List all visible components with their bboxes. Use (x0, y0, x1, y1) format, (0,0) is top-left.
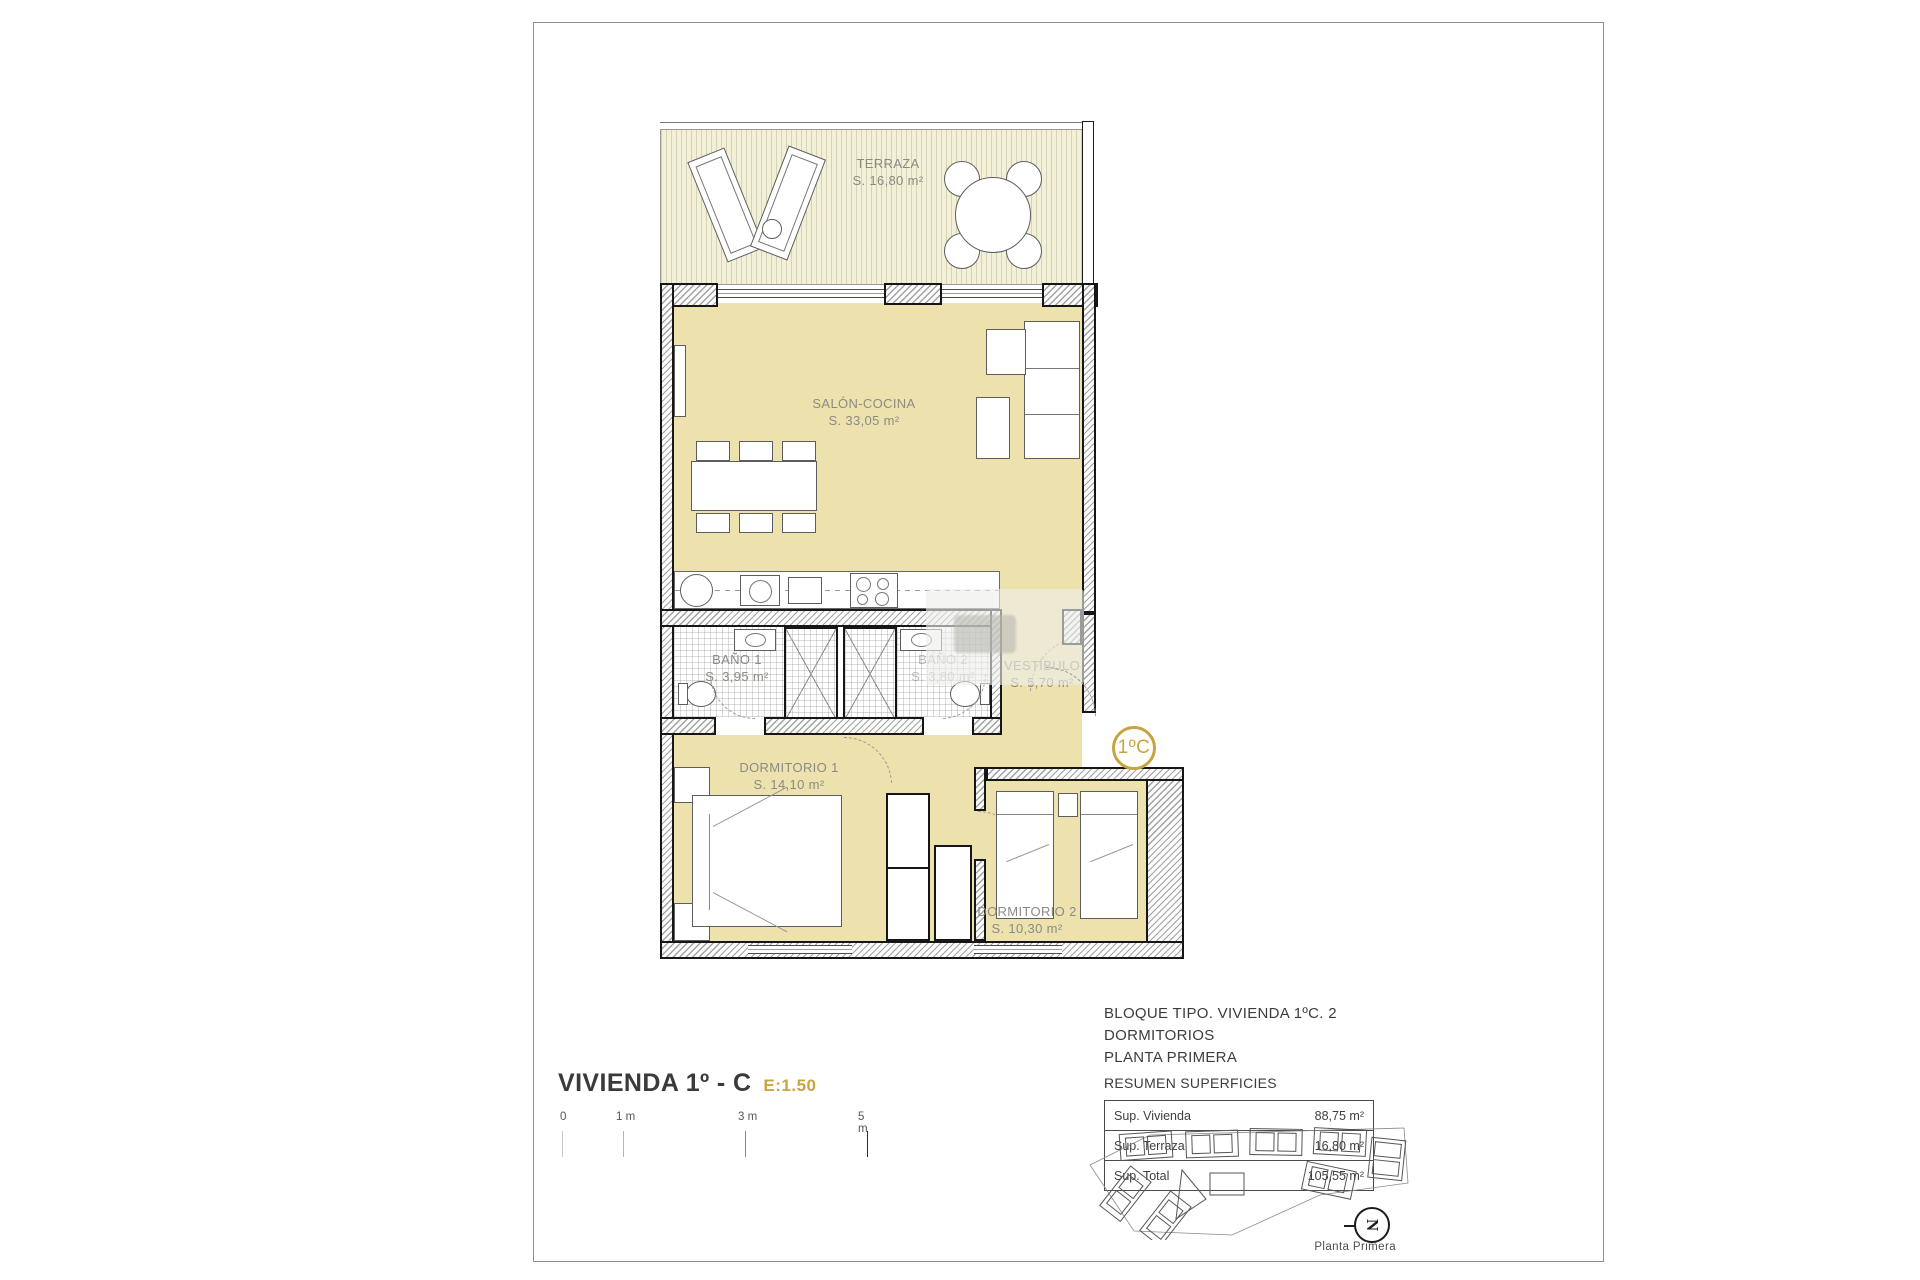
cooktop (850, 573, 898, 608)
scale-tick (623, 1131, 624, 1157)
north-letter: N (1362, 1219, 1382, 1231)
wall-dorm2-right (1146, 779, 1184, 943)
room-name: BAÑO 1 (684, 651, 790, 668)
wall-top-middle (884, 283, 942, 305)
dining-chair (696, 513, 730, 533)
sofa-main (1024, 321, 1080, 459)
side-table (976, 397, 1010, 459)
north-arrow-icon: N (1354, 1207, 1390, 1243)
scale-tick (562, 1131, 563, 1157)
north-arrow-tail (1344, 1225, 1356, 1227)
terrace-side-table (762, 219, 782, 239)
room-name: TERRAZA (832, 155, 944, 172)
bath1-cistern (678, 683, 688, 705)
shower-1 (784, 627, 838, 721)
unit-badge: 1ºC (1112, 726, 1156, 770)
plan-scale: E:1.50 (763, 1076, 816, 1095)
dining-chair (696, 441, 730, 461)
media-unit (674, 345, 686, 417)
wall-bath-bottom-1 (660, 717, 716, 735)
scale-bar: 0 1 m 3 m 5 m (560, 1111, 872, 1161)
unit-badge-text: 1ºC (1118, 737, 1151, 759)
room-label-dormitorio2: DORMITORIO 2 S. 10,30 m² (952, 903, 1102, 937)
hall-floor (974, 735, 1082, 769)
dining-table (691, 461, 817, 511)
dining-chair (739, 441, 773, 461)
room-area: S. 33,05 m² (784, 412, 944, 429)
dorm2-bed-2 (1080, 791, 1138, 919)
summary-line1: BLOQUE TIPO. VIVIENDA 1ºC. 2 DORMITORIOS (1104, 1003, 1384, 1047)
watermark-logo (954, 615, 1016, 653)
scale-tick-label: 3 m (738, 1111, 757, 1123)
duvet-fold (1006, 844, 1049, 862)
kitchen-sink (740, 575, 780, 606)
pillow-line (1081, 814, 1137, 815)
surface-label: Sup. Vivienda (1114, 1109, 1191, 1123)
wall-bottom (660, 941, 1184, 959)
burner (875, 592, 889, 606)
summary-line2: PLANTA PRIMERA (1104, 1047, 1384, 1069)
surface-value: 88,75 m² (1315, 1109, 1364, 1123)
basin (745, 633, 766, 647)
duvet-fold (1090, 844, 1133, 862)
wall-right-salon (1082, 283, 1096, 613)
scale-tick-label: 5 m (858, 1111, 872, 1135)
burner (856, 577, 871, 592)
salon-window-right (942, 289, 1042, 298)
wall-bath-bottom-3 (972, 717, 1002, 735)
dining-chair (782, 513, 816, 533)
dorm2-nightstand (1058, 793, 1078, 817)
drawing-sheet: TERRAZA S. 16,80 m² SALÓN-COCINA S (533, 22, 1604, 1262)
summary-line3: RESUMEN SUPERFICIES (1104, 1075, 1384, 1091)
kitchen-cabinet (788, 577, 822, 604)
burner (877, 578, 889, 590)
dining-chair (739, 513, 773, 533)
burner (857, 594, 868, 605)
room-area: S. 16,80 m² (832, 172, 944, 189)
wall-bath-bottom-2 (764, 717, 924, 735)
keyplan-caption: Planta Primera (1296, 1241, 1396, 1253)
room-area: S. 3,95 m² (684, 668, 790, 685)
plan-title: VIVIENDA 1º - C (558, 1069, 751, 1097)
scale-tick-label: 1 m (616, 1111, 635, 1123)
screenshot-canvas: TERRAZA S. 16,80 m² SALÓN-COCINA S (0, 0, 1920, 1280)
sofa-chaise (986, 329, 1026, 375)
pillow-line (997, 814, 1053, 815)
title-block: VIVIENDA 1º - CE:1.50 (558, 1069, 817, 1098)
terrace-screen-wall (1082, 121, 1094, 285)
terrace-round-table (955, 177, 1031, 253)
room-label-salon: SALÓN-COCINA S. 33,05 m² (784, 395, 944, 429)
room-name: SALÓN-COCINA (784, 395, 944, 412)
room-area: S. 10,30 m² (952, 920, 1102, 937)
room-name: DORMITORIO 2 (952, 903, 1102, 920)
headboard-line (709, 814, 710, 910)
dorm2-bed-1 (996, 791, 1054, 919)
key-plan: N Planta Primera (1082, 1125, 1416, 1255)
room-label-bano1: BAÑO 1 S. 3,95 m² (684, 651, 790, 685)
dorm1-window (748, 945, 852, 954)
sink-bowl (749, 580, 772, 603)
room-label-terraza: TERRAZA S. 16,80 m² (832, 155, 944, 189)
wall-dorm2-left-top (974, 767, 986, 811)
wardrobe-1 (886, 793, 930, 941)
shower-2 (843, 627, 897, 721)
scale-tick (867, 1131, 868, 1157)
bath1-sink (734, 629, 776, 651)
washing-machine (680, 574, 713, 607)
salon-window-left (718, 289, 884, 298)
dining-chair (782, 441, 816, 461)
terrace-edge-line (660, 122, 1094, 123)
dorm2-window (974, 945, 1062, 954)
duvet-fold (713, 892, 788, 932)
dorm1-double-bed (692, 795, 842, 927)
scale-tick-label: 0 (560, 1111, 566, 1123)
scale-tick (745, 1131, 746, 1157)
